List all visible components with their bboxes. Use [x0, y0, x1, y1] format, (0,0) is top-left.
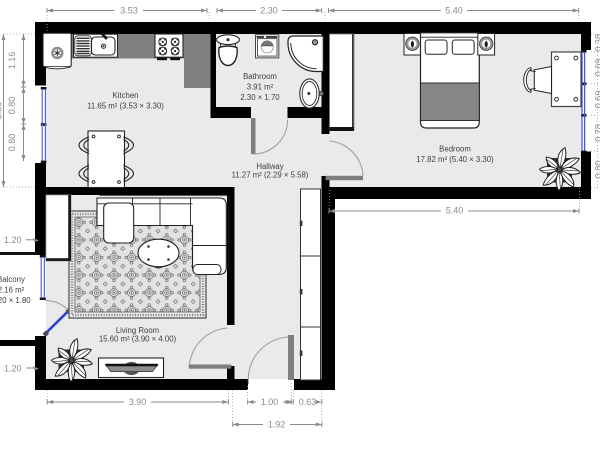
svg-text:2.16 m²: 2.16 m²: [0, 286, 25, 295]
svg-text:1.16: 1.16: [7, 52, 17, 70]
svg-text:0.80: 0.80: [594, 161, 600, 179]
svg-text:0.38: 0.38: [594, 34, 600, 52]
svg-text:0.78: 0.78: [594, 124, 600, 142]
svg-text:0.69: 0.69: [594, 59, 600, 77]
svg-text:17.82 m² (5.40 × 3.30): 17.82 m² (5.40 × 3.30): [416, 155, 494, 164]
svg-text:0.63: 0.63: [299, 397, 317, 407]
svg-text:2.30 × 1.70: 2.30 × 1.70: [240, 93, 280, 102]
svg-text:3.53: 3.53: [120, 6, 138, 16]
svg-text:1.20 × 1.80: 1.20 × 1.80: [0, 296, 31, 305]
svg-text:Kitchen: Kitchen: [112, 91, 138, 100]
svg-text:Balcony: Balcony: [0, 275, 25, 284]
svg-text:3.30: 3.30: [0, 102, 4, 120]
svg-text:Bathroom: Bathroom: [243, 72, 277, 81]
svg-text:0.69: 0.69: [594, 91, 600, 109]
svg-text:0.80: 0.80: [7, 97, 17, 115]
svg-text:Bedroom: Bedroom: [439, 145, 471, 154]
svg-text:11.27 m² (2.29 × 5.58): 11.27 m² (2.29 × 5.58): [232, 171, 309, 180]
svg-text:1.00: 1.00: [261, 397, 279, 407]
svg-text:11.65 m² (3.53 × 3.30): 11.65 m² (3.53 × 3.30): [87, 102, 164, 111]
svg-text:1.20: 1.20: [4, 235, 22, 245]
svg-text:3.90: 3.90: [129, 397, 147, 407]
svg-text:1.92: 1.92: [268, 420, 286, 430]
svg-text:2.30: 2.30: [260, 6, 278, 16]
svg-text:15.60 m² (3.90 × 4.00): 15.60 m² (3.90 × 4.00): [99, 335, 177, 344]
svg-text:1.20: 1.20: [4, 364, 22, 374]
svg-text:5.40: 5.40: [445, 6, 463, 16]
svg-text:3.91 m²: 3.91 m²: [247, 83, 274, 92]
svg-text:0.80: 0.80: [7, 134, 17, 152]
svg-text:5.40: 5.40: [446, 206, 464, 216]
